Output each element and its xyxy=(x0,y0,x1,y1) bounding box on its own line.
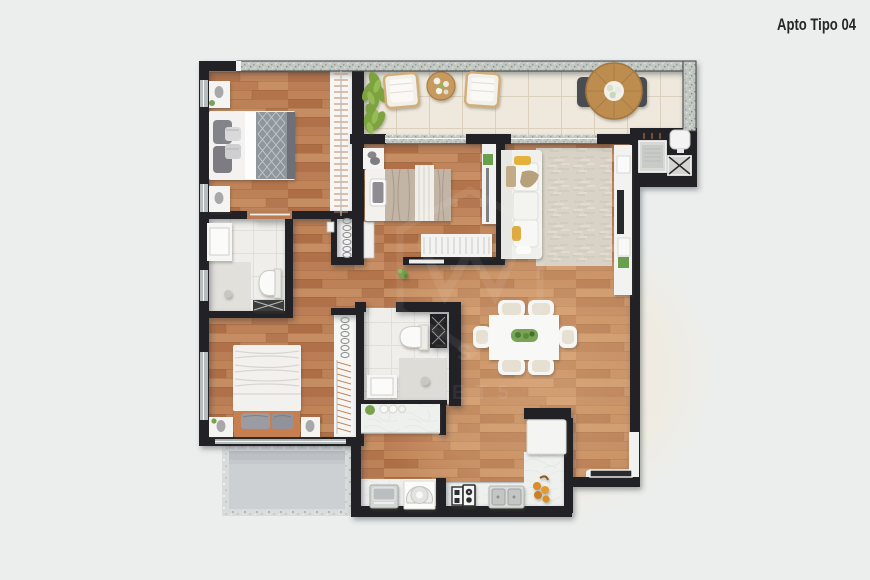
svg-text:Apto Tipo 04: Apto Tipo 04 xyxy=(777,15,856,34)
svg-text:VETS: VETS xyxy=(390,340,479,365)
svg-text:ET5: ET5 xyxy=(452,382,519,404)
